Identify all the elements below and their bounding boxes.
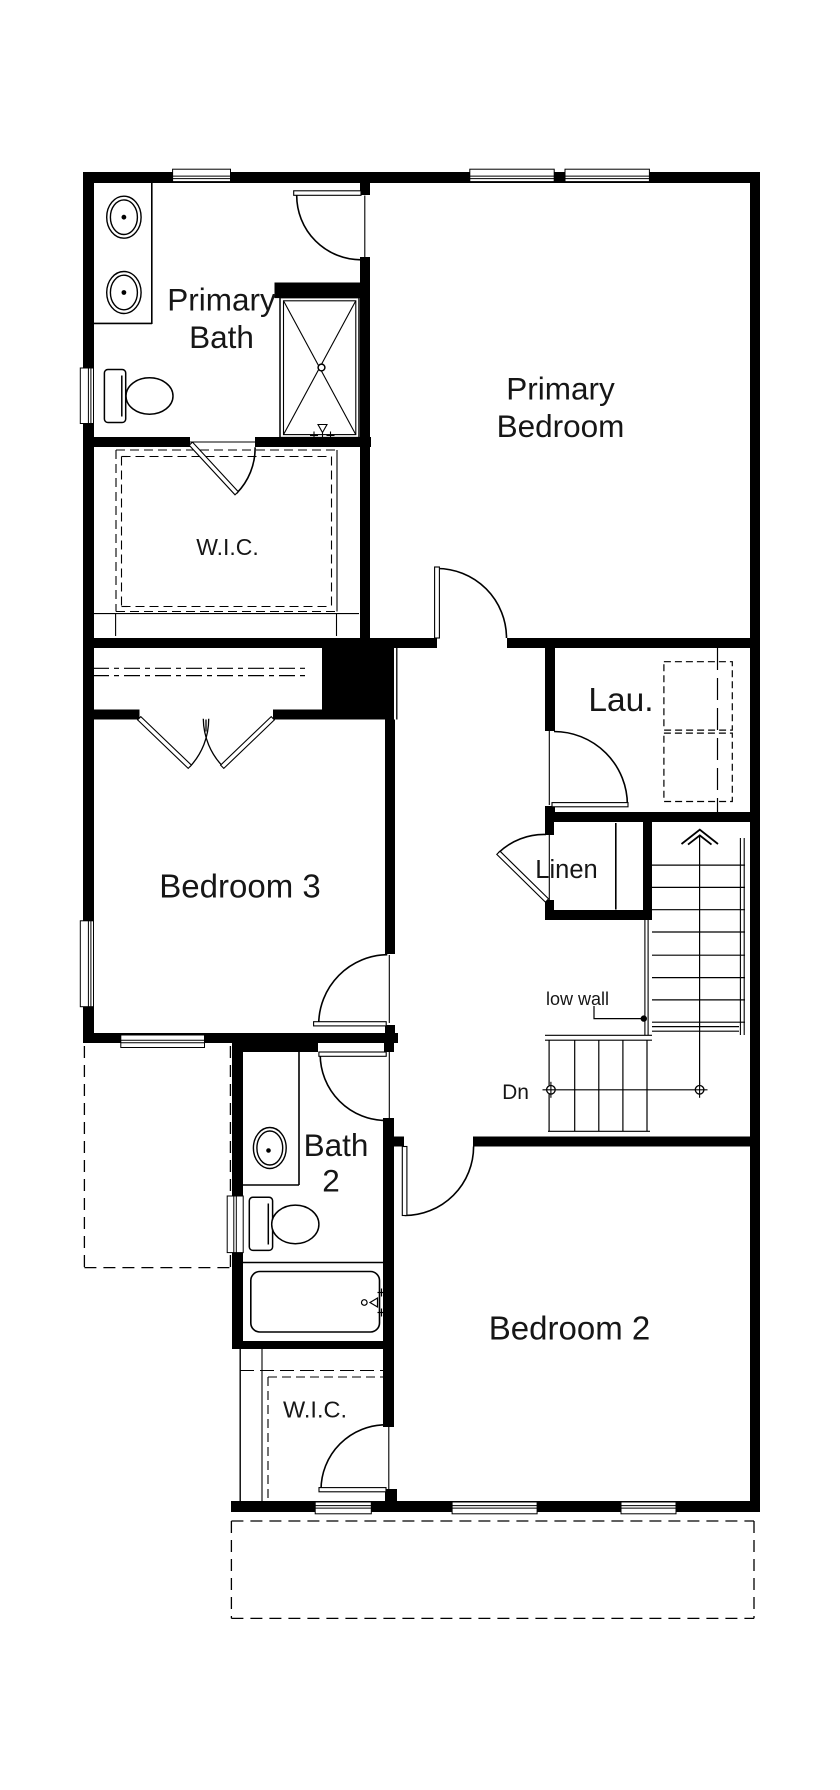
svg-text:Bedroom: Bedroom	[497, 408, 625, 444]
svg-text:Bedroom 2: Bedroom 2	[489, 1310, 650, 1347]
svg-text:W.I.C.: W.I.C.	[283, 1397, 347, 1423]
svg-text:2: 2	[322, 1163, 340, 1199]
svg-text:Lau.: Lau.	[588, 682, 653, 719]
svg-text:Bath: Bath	[304, 1127, 369, 1163]
svg-text:Bath: Bath	[189, 319, 254, 355]
svg-text:Dn: Dn	[502, 1081, 529, 1104]
svg-text:low wall: low wall	[546, 989, 609, 1009]
svg-text:Bedroom 3: Bedroom 3	[159, 868, 320, 905]
svg-text:Primary: Primary	[506, 371, 615, 407]
svg-text:Primary: Primary	[167, 282, 276, 318]
svg-text:Linen: Linen	[535, 856, 597, 884]
svg-text:W.I.C.: W.I.C.	[196, 534, 259, 560]
